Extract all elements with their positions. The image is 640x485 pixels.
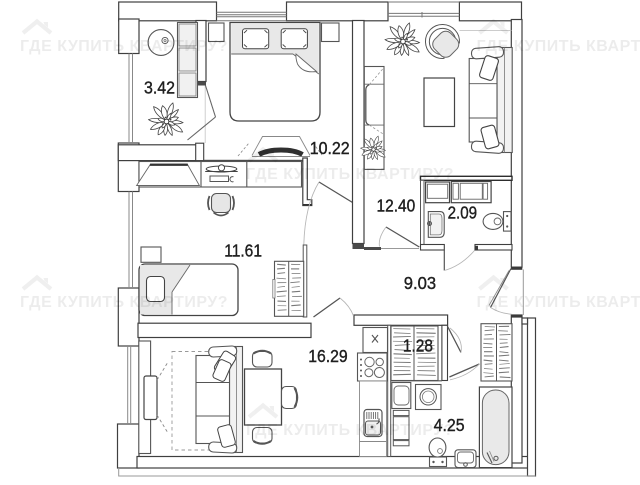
svg-text:3.42: 3.42: [144, 78, 175, 98]
svg-text:ГДЕ КУПИТЬ КВАРТИРУ?: ГДЕ КУПИТЬ КВАРТИРУ?: [20, 38, 228, 55]
svg-text:2.09: 2.09: [448, 203, 478, 223]
svg-text:9.03: 9.03: [404, 273, 436, 293]
svg-text:1.28: 1.28: [403, 335, 433, 355]
svg-text:ГДЕ КУПИТЬ КВАРТИРУ?: ГДЕ КУПИТЬ КВАРТИРУ?: [20, 294, 228, 311]
svg-text:ГДЕ КУПИТЬ КВАРТИРУ?: ГДЕ КУПИТЬ КВАРТИРУ?: [246, 166, 454, 183]
svg-text:11.61: 11.61: [224, 240, 262, 260]
svg-text:ГДЕ КУПИТЬ КВАРТИРУ?: ГДЕ КУПИТЬ КВАРТИРУ?: [477, 294, 640, 311]
svg-text:ГДЕ КУПИТЬ КВАРТИРУ?: ГДЕ КУПИТЬ КВАРТИРУ?: [477, 38, 640, 55]
svg-text:ГДЕ КУПИТЬ КВАРТИРУ?: ГДЕ КУПИТЬ КВАРТИРУ?: [246, 422, 454, 439]
svg-text:10.22: 10.22: [310, 138, 350, 158]
svg-text:12.40: 12.40: [377, 196, 416, 216]
svg-text:16.29: 16.29: [308, 346, 348, 366]
